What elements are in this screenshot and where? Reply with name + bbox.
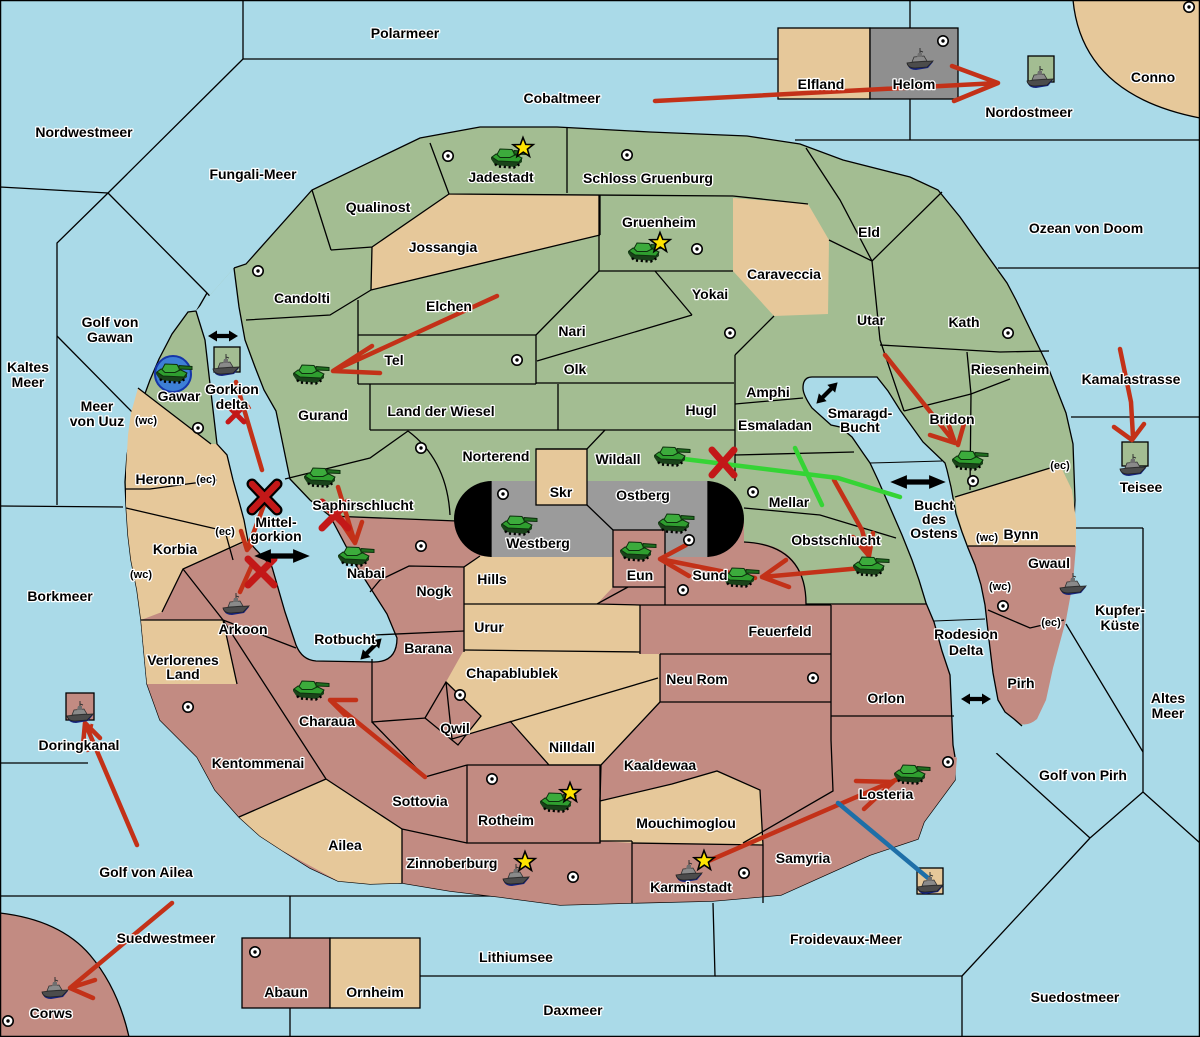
svg-text:Eld: Eld (858, 224, 880, 240)
svg-text:Golf von Pirh: Golf von Pirh (1039, 767, 1127, 783)
svg-text:Fungali-Meer: Fungali-Meer (209, 166, 297, 182)
svg-text:Bucht: Bucht (840, 419, 880, 435)
svg-text:Kath: Kath (948, 314, 979, 330)
svg-text:Elfland: Elfland (798, 76, 845, 92)
svg-text:Nilldall: Nilldall (549, 739, 595, 755)
svg-text:Land der Wiesel: Land der Wiesel (387, 403, 494, 419)
svg-text:Riesenheim: Riesenheim (971, 361, 1050, 377)
svg-text:Gwaul: Gwaul (1028, 555, 1070, 571)
svg-text:Saphirschlucht: Saphirschlucht (312, 497, 413, 513)
svg-text:Ostberg: Ostberg (616, 487, 670, 503)
svg-text:Mellar: Mellar (769, 494, 810, 510)
svg-text:Eun: Eun (627, 567, 653, 583)
svg-text:Sottovia: Sottovia (392, 793, 447, 809)
svg-text:Delta: Delta (949, 642, 983, 658)
svg-text:Meer: Meer (12, 374, 45, 390)
svg-text:Bynn: Bynn (1004, 526, 1039, 542)
svg-text:Losteria: Losteria (859, 786, 914, 802)
svg-text:Kentommenai: Kentommenai (212, 755, 305, 771)
svg-text:Candolti: Candolti (274, 290, 330, 306)
svg-text:Kamalastrasse: Kamalastrasse (1082, 371, 1181, 387)
svg-text:Hugl: Hugl (685, 402, 716, 418)
svg-text:Gorkion: Gorkion (205, 381, 259, 397)
svg-text:Jossangia: Jossangia (409, 239, 478, 255)
svg-text:Küste: Küste (1101, 617, 1140, 633)
svg-text:Kaaldewaa: Kaaldewaa (624, 757, 697, 773)
svg-text:Westberg: Westberg (506, 535, 570, 551)
svg-text:Orlon: Orlon (867, 690, 904, 706)
svg-text:Nordwestmeer: Nordwestmeer (35, 124, 133, 140)
svg-text:(ec): (ec) (215, 526, 235, 538)
svg-text:Mouchimoglou: Mouchimoglou (636, 815, 736, 831)
svg-text:Tel: Tel (384, 352, 403, 368)
svg-text:Wildall: Wildall (596, 451, 641, 467)
svg-text:Ornheim: Ornheim (346, 984, 404, 1000)
svg-text:Doringkanal: Doringkanal (39, 737, 120, 753)
svg-text:(wc): (wc) (989, 581, 1011, 593)
svg-text:Chapablublek: Chapablublek (466, 665, 558, 681)
svg-text:Meer: Meer (81, 398, 114, 414)
svg-text:Qualinost: Qualinost (346, 199, 411, 215)
svg-text:Ailea: Ailea (328, 837, 362, 853)
svg-text:Nogk: Nogk (417, 583, 452, 599)
svg-text:Barana: Barana (404, 640, 452, 656)
svg-text:Norterend: Norterend (463, 448, 530, 464)
svg-text:Yokai: Yokai (692, 286, 728, 302)
svg-text:Conno: Conno (1131, 69, 1175, 85)
svg-text:Borkmeer: Borkmeer (27, 588, 93, 604)
svg-text:Bridon: Bridon (929, 411, 974, 427)
svg-text:Abaun: Abaun (264, 984, 308, 1000)
svg-text:Lithiumsee: Lithiumsee (479, 949, 553, 965)
svg-text:(wc): (wc) (130, 569, 152, 581)
svg-text:(ec): (ec) (196, 474, 216, 486)
svg-text:Samyria: Samyria (776, 850, 831, 866)
svg-text:Karminstadt: Karminstadt (650, 879, 732, 895)
svg-text:Jadestadt: Jadestadt (468, 169, 534, 185)
svg-text:Neu Rom: Neu Rom (666, 671, 727, 687)
svg-text:Zinnoberburg: Zinnoberburg (407, 855, 498, 871)
svg-text:Altes: Altes (1151, 690, 1185, 706)
svg-text:Rotbucht: Rotbucht (314, 631, 376, 647)
svg-text:Esmaladan: Esmaladan (738, 417, 812, 433)
svg-text:Kaltes: Kaltes (7, 359, 49, 375)
svg-text:Suedostmeer: Suedostmeer (1031, 989, 1120, 1005)
svg-text:Urur: Urur (474, 619, 504, 635)
svg-text:Ostens: Ostens (910, 525, 958, 541)
svg-text:Caraveccia: Caraveccia (747, 266, 821, 282)
svg-text:Ozean von Doom: Ozean von Doom (1029, 220, 1143, 236)
svg-text:Charaua: Charaua (299, 713, 355, 729)
svg-text:Nabai: Nabai (347, 565, 385, 581)
svg-text:Daxmeer: Daxmeer (543, 1002, 603, 1018)
svg-text:Schloss Gruenburg: Schloss Gruenburg (583, 170, 713, 186)
svg-text:Feuerfeld: Feuerfeld (748, 623, 811, 639)
svg-text:Meer: Meer (1152, 705, 1185, 721)
svg-text:Kupfer-: Kupfer- (1095, 602, 1145, 618)
svg-text:Arkoon: Arkoon (219, 621, 268, 637)
svg-text:Korbia: Korbia (153, 541, 198, 557)
svg-text:von Uuz: von Uuz (70, 413, 124, 429)
svg-text:(ec): (ec) (1050, 460, 1070, 472)
svg-text:Rodesion: Rodesion (934, 626, 998, 642)
svg-text:Rotheim: Rotheim (478, 812, 534, 828)
svg-text:Nordostmeer: Nordostmeer (985, 104, 1073, 120)
svg-text:Gruenheim: Gruenheim (622, 214, 696, 230)
svg-text:Nari: Nari (558, 323, 585, 339)
svg-text:Sund: Sund (693, 567, 728, 583)
svg-text:Gawan: Gawan (87, 329, 133, 345)
svg-text:Obstschlucht: Obstschlucht (791, 532, 881, 548)
svg-text:Land: Land (166, 666, 199, 682)
svg-text:Golf von Ailea: Golf von Ailea (99, 864, 193, 880)
svg-text:Corws: Corws (30, 1005, 73, 1021)
svg-text:Amphi: Amphi (746, 384, 790, 400)
svg-text:Polarmeer: Polarmeer (371, 25, 440, 41)
svg-text:Teisee: Teisee (1120, 479, 1163, 495)
svg-text:Helom: Helom (893, 76, 936, 92)
svg-text:(wc): (wc) (135, 415, 157, 427)
svg-text:Skr: Skr (550, 484, 573, 500)
svg-text:Golf von: Golf von (82, 314, 139, 330)
svg-text:Gawar: Gawar (158, 388, 201, 404)
svg-text:Gurand: Gurand (298, 407, 348, 423)
svg-text:Heronn: Heronn (136, 471, 185, 487)
svg-text:Hills: Hills (477, 571, 507, 587)
svg-text:Olk: Olk (564, 361, 587, 377)
svg-text:(wc): (wc) (976, 532, 998, 544)
svg-text:(ec): (ec) (1041, 617, 1061, 629)
svg-text:delta: delta (216, 396, 249, 412)
svg-text:Cobaltmeer: Cobaltmeer (523, 90, 601, 106)
svg-text:gorkion: gorkion (250, 528, 301, 544)
svg-text:Utar: Utar (857, 312, 886, 328)
svg-text:Elchen: Elchen (426, 298, 472, 314)
svg-text:Qwil: Qwil (440, 720, 470, 736)
svg-text:Suedwestmeer: Suedwestmeer (117, 930, 216, 946)
svg-text:Froidevaux-Meer: Froidevaux-Meer (790, 931, 903, 947)
svg-text:Pirh: Pirh (1007, 675, 1034, 691)
